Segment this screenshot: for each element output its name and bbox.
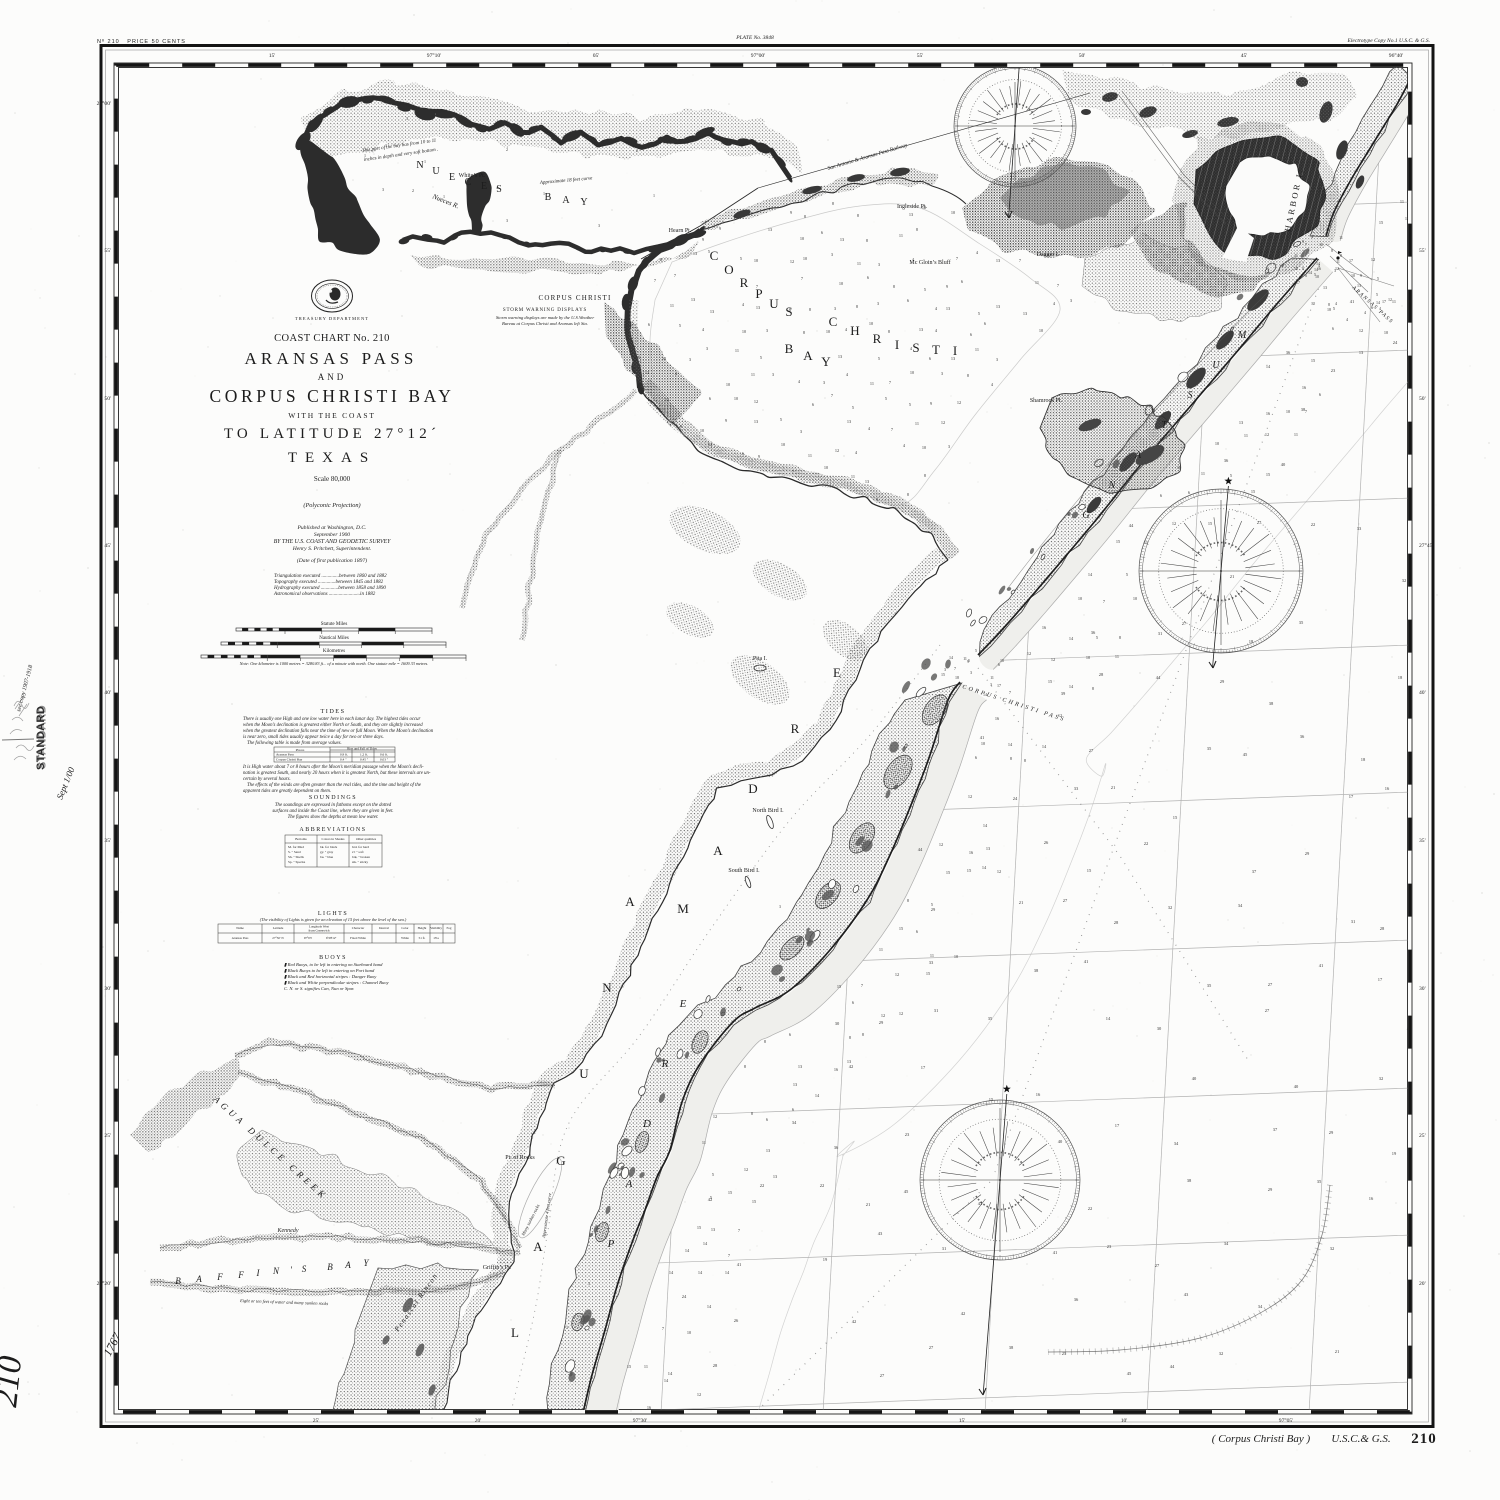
- svg-text:Rise and Fall of Tides: Rise and Fall of Tides: [347, 747, 377, 751]
- svg-text:3: 3: [996, 357, 998, 362]
- svg-text:38: 38: [1269, 701, 1274, 706]
- svg-text:9: 9: [725, 418, 727, 423]
- svg-text:28: 28: [1380, 926, 1385, 931]
- svg-text:Electrotype Copy No.1 U.S.C.: Electrotype Copy No.1 U.S.C. & G.S.: [1347, 38, 1430, 44]
- svg-text:33: 33: [929, 960, 934, 965]
- svg-text:13: 13: [1323, 285, 1327, 290]
- svg-text:29: 29: [931, 907, 936, 912]
- svg-text:15: 15: [1087, 868, 1092, 873]
- svg-text:5: 5: [852, 405, 854, 410]
- svg-text:3: 3: [766, 328, 768, 333]
- svg-text:8: 8: [764, 1039, 766, 1044]
- svg-text:3: 3: [689, 357, 691, 362]
- svg-text:15: 15: [728, 1190, 732, 1195]
- svg-text:8: 8: [907, 492, 909, 497]
- svg-text:WITH THE COAST: WITH THE COAST: [288, 411, 376, 420]
- svg-text:50': 50': [104, 396, 111, 402]
- svg-text:8: 8: [1119, 635, 1121, 640]
- svg-text:B: B: [175, 1276, 181, 1286]
- svg-text:10: 10: [1319, 242, 1323, 247]
- svg-text:B: B: [545, 192, 552, 203]
- svg-text:10: 10: [800, 236, 804, 241]
- svg-text:55': 55': [917, 53, 924, 59]
- svg-text:15: 15: [941, 672, 945, 677]
- svg-text:R: R: [873, 331, 882, 346]
- svg-text:8: 8: [866, 238, 868, 243]
- svg-text:2: 2: [412, 188, 414, 193]
- svg-text:TO LATITUDE 27°12´: TO LATITUDE 27°12´: [224, 426, 440, 442]
- svg-text:10: 10: [954, 954, 958, 959]
- svg-text:12: 12: [697, 1392, 701, 1397]
- svg-text:17: 17: [1382, 299, 1386, 304]
- svg-text:55': 55': [1419, 248, 1426, 254]
- svg-text:13: 13: [754, 419, 758, 424]
- svg-text:8: 8: [803, 330, 805, 335]
- svg-text:8: 8: [849, 1035, 851, 1040]
- svg-text:15: 15: [837, 984, 841, 989]
- svg-text:36: 36: [1074, 1297, 1079, 1302]
- svg-text:15: 15: [1116, 539, 1120, 544]
- svg-text:15: 15: [1311, 358, 1315, 363]
- svg-text:Corpus Christi Bay: Corpus Christi Bay: [276, 758, 302, 762]
- svg-text:F: F: [237, 1270, 244, 1280]
- svg-text:43: 43: [1184, 1292, 1189, 1297]
- svg-text:97°00': 97°00': [751, 52, 765, 59]
- svg-text:E: E: [679, 998, 687, 1010]
- svg-text:44: 44: [1170, 1364, 1175, 1369]
- svg-text:16: 16: [1036, 1092, 1041, 1097]
- svg-text:40: 40: [1058, 1139, 1063, 1144]
- svg-text:50': 50': [1079, 53, 1086, 59]
- svg-text:S. ″ Sand: S. ″ Sand: [288, 850, 301, 854]
- svg-text:14: 14: [1308, 270, 1312, 275]
- svg-text:E: E: [449, 172, 455, 183]
- svg-text:Kilometres: Kilometres: [323, 649, 345, 654]
- svg-text:15: 15: [1208, 521, 1212, 526]
- svg-text:8: 8: [809, 307, 811, 312]
- svg-text:12: 12: [941, 420, 945, 425]
- svg-text:27: 27: [880, 1373, 885, 1378]
- svg-text:17: 17: [921, 1065, 926, 1070]
- svg-text:22: 22: [1144, 841, 1149, 846]
- svg-text:CORPUS CHRISTI BAY: CORPUS CHRISTI BAY: [209, 386, 454, 406]
- svg-text:13: 13: [909, 212, 913, 217]
- svg-text:12: 12: [1388, 297, 1392, 302]
- svg-text:10: 10: [700, 428, 704, 433]
- svg-text:27: 27: [1155, 1263, 1160, 1268]
- svg-text:5: 5: [885, 396, 887, 401]
- svg-text:9: 9: [1302, 239, 1304, 244]
- svg-text:5: 5: [909, 402, 911, 407]
- svg-text:Published at Washington, D.C.: Published at Washington, D.C.: [296, 525, 366, 531]
- svg-text:11: 11: [670, 303, 674, 308]
- svg-text:Y: Y: [580, 197, 587, 208]
- svg-text:3: 3: [598, 223, 600, 228]
- svg-text:Nº 210 PRICE 50 CENTS: Nº 210 PRICE 50 CENTS: [97, 38, 186, 45]
- svg-text:41: 41: [1350, 299, 1355, 304]
- svg-text:18: 18: [955, 675, 959, 680]
- svg-text:U: U: [579, 1066, 589, 1081]
- svg-text:11: 11: [1115, 654, 1119, 659]
- svg-text:11: 11: [857, 261, 861, 266]
- svg-text:Places: Places: [296, 748, 305, 752]
- svg-text:97°10': 97°10': [427, 52, 441, 59]
- svg-text:G: G: [556, 1153, 565, 1168]
- svg-text:TREASURY DEPARTMENT: TREASURY DEPARTMENT: [295, 316, 369, 321]
- svg-text:G: G: [1082, 510, 1089, 521]
- svg-text:S: S: [1188, 390, 1193, 401]
- svg-text:17: 17: [1296, 280, 1300, 285]
- svg-text:11: 11: [990, 675, 994, 680]
- svg-text:R: R: [791, 721, 800, 736]
- svg-text:5: 5: [780, 417, 782, 422]
- svg-text:9: 9: [876, 497, 878, 502]
- svg-text:2: 2: [506, 147, 508, 152]
- svg-text:15: 15: [946, 870, 950, 875]
- svg-text:10: 10: [803, 256, 807, 261]
- svg-text:41: 41: [737, 1262, 742, 1267]
- svg-text:A: A: [533, 1239, 543, 1254]
- svg-text:Other qualities: Other qualities: [356, 837, 377, 841]
- svg-text:Hearn Pt.: Hearn Pt.: [669, 228, 692, 234]
- svg-text:27: 27: [1268, 982, 1273, 987]
- svg-text:12: 12: [1051, 657, 1055, 662]
- svg-text:18: 18: [1361, 757, 1366, 762]
- svg-text:8: 8: [857, 213, 859, 218]
- svg-text:40: 40: [1281, 462, 1286, 467]
- svg-text:15: 15: [697, 1225, 701, 1230]
- svg-text:5: 5: [712, 1172, 714, 1177]
- svg-text:The figures show the depths at: The figures show the depths at mean low …: [288, 815, 379, 820]
- svg-text:30: 30: [1157, 1026, 1162, 1031]
- svg-text:13: 13: [798, 1064, 802, 1069]
- svg-text:10: 10: [981, 741, 985, 746]
- svg-text:8: 8: [1331, 248, 1333, 253]
- svg-text:44: 44: [1156, 675, 1161, 680]
- svg-text:10: 10: [754, 258, 758, 263]
- svg-text:36: 36: [1286, 350, 1291, 355]
- svg-text:27: 27: [1089, 748, 1094, 753]
- svg-text:55': 55': [104, 248, 111, 254]
- svg-text:35: 35: [1207, 746, 1212, 751]
- svg-text:D: D: [748, 781, 757, 796]
- svg-text:30: 30: [835, 1021, 840, 1026]
- svg-text:97°05': 97°05': [1279, 1417, 1293, 1424]
- svg-text:30': 30': [1419, 986, 1426, 992]
- svg-text:39: 39: [1061, 691, 1066, 696]
- svg-text:12: 12: [708, 442, 712, 447]
- svg-text:13: 13: [665, 397, 669, 402]
- svg-text:10: 10: [687, 1330, 691, 1335]
- svg-text:13¼: 13¼: [433, 936, 439, 940]
- svg-text:5: 5: [740, 256, 742, 261]
- svg-text:43: 43: [878, 1231, 883, 1236]
- svg-text:11: 11: [1035, 280, 1039, 285]
- svg-text:32: 32: [1330, 1246, 1335, 1251]
- svg-text:5: 5: [1230, 473, 1232, 478]
- svg-text:A: A: [625, 1178, 633, 1190]
- svg-text:15: 15: [1048, 679, 1052, 684]
- svg-text:36: 36: [1091, 630, 1096, 635]
- svg-text:42: 42: [852, 1319, 857, 1324]
- svg-text:38: 38: [1009, 1345, 1014, 1350]
- svg-text:7: 7: [954, 666, 956, 671]
- svg-text:15: 15: [1251, 489, 1255, 494]
- svg-text:O: O: [724, 262, 733, 277]
- svg-text:10: 10: [839, 281, 843, 286]
- svg-text:29: 29: [1268, 1187, 1273, 1192]
- svg-text:Name: Name: [236, 926, 244, 930]
- svg-text:Sh. ″ Shells: Sh. ″ Shells: [288, 855, 305, 859]
- svg-text:(The visibility of Lights is g: (The visibility of Lights is given for a…: [260, 917, 407, 922]
- svg-text:21: 21: [866, 1202, 871, 1207]
- svg-text:96°40': 96°40': [1389, 52, 1403, 59]
- svg-text:35': 35': [1419, 838, 1426, 844]
- svg-text:41: 41: [1319, 963, 1324, 968]
- svg-text:4: 4: [1346, 317, 1348, 322]
- svg-text:CORPUS CHRISTI: CORPUS CHRISTI: [538, 294, 611, 302]
- svg-text:17: 17: [997, 683, 1001, 688]
- svg-text:15: 15: [1310, 226, 1314, 231]
- svg-text:27°45': 27°45': [1419, 542, 1433, 549]
- svg-text:3: 3: [1070, 298, 1072, 303]
- svg-text:18: 18: [1398, 675, 1403, 680]
- svg-text:Bureau at Corpus Christi and A: Bureau at Corpus Christi and Aransas lef…: [502, 321, 588, 326]
- svg-text:BY THE U.S. COAST AND GEODETIC: BY THE U.S. COAST AND GEODETIC SURVEY: [274, 539, 392, 545]
- svg-text:COAST CHART No. 210: COAST CHART No. 210: [274, 333, 390, 344]
- svg-text:13: 13: [1239, 420, 1243, 425]
- svg-text:Scale 80,000: Scale 80,000: [314, 475, 351, 483]
- svg-text:15: 15: [1379, 220, 1383, 225]
- svg-text:13: 13: [996, 258, 1000, 263]
- svg-text:3: 3: [831, 252, 833, 257]
- svg-text:14: 14: [1106, 1016, 1111, 1021]
- svg-text:2: 2: [636, 148, 638, 153]
- svg-text:29: 29: [1329, 1130, 1334, 1135]
- svg-text:T: T: [932, 342, 940, 357]
- svg-text:ARANSAS PASS: ARANSAS PASS: [244, 349, 417, 368]
- svg-text:31: 31: [934, 1008, 939, 1013]
- svg-text:36: 36: [1224, 458, 1229, 463]
- svg-text:11: 11: [1339, 235, 1343, 240]
- svg-text:11: 11: [851, 474, 855, 479]
- svg-text:5: 5: [1192, 547, 1194, 552]
- svg-text:23: 23: [1331, 368, 1336, 373]
- svg-text:15: 15: [899, 926, 903, 931]
- svg-text:A: A: [713, 843, 723, 858]
- svg-text:11: 11: [975, 347, 979, 352]
- svg-text:6: 6: [1332, 326, 1334, 331]
- svg-text:05': 05': [593, 53, 600, 59]
- svg-text:Statute Miles: Statute Miles: [321, 622, 348, 627]
- svg-text:12: 12: [1027, 651, 1031, 656]
- svg-text:21: 21: [1335, 1349, 1340, 1354]
- svg-text:9: 9: [719, 226, 721, 231]
- svg-text:44: 44: [918, 847, 923, 852]
- svg-text:8: 8: [1340, 253, 1342, 258]
- svg-text:8: 8: [862, 1032, 864, 1037]
- svg-text:9: 9: [702, 237, 704, 242]
- svg-text:12: 12: [957, 400, 961, 405]
- svg-text:35: 35: [1207, 983, 1212, 988]
- svg-text:3: 3: [834, 306, 836, 311]
- svg-text:25': 25': [104, 1133, 111, 1139]
- svg-text:N: N: [272, 1266, 280, 1276]
- svg-text:AND: AND: [318, 372, 347, 382]
- svg-text:24: 24: [1393, 340, 1398, 345]
- svg-text:15: 15: [989, 1097, 994, 1102]
- svg-text:L: L: [511, 1325, 519, 1340]
- svg-text:11: 11: [1400, 199, 1404, 204]
- svg-text:3: 3: [990, 682, 992, 687]
- svg-text:H: H: [850, 323, 859, 338]
- svg-text:0.6 ft.: 0.6 ft.: [380, 753, 388, 757]
- svg-text:37: 37: [1273, 1127, 1278, 1132]
- svg-text:18: 18: [1294, 266, 1298, 271]
- svg-text:12: 12: [1172, 521, 1176, 526]
- svg-text:30': 30': [104, 986, 111, 992]
- svg-text:5: 5: [760, 355, 762, 360]
- svg-text:9: 9: [946, 284, 948, 289]
- svg-text:▮ Black and Red horizontal str: ▮ Black and Red horizontal stripes : Dan…: [284, 974, 377, 979]
- svg-text:D: D: [642, 1118, 651, 1130]
- svg-text:14: 14: [668, 1371, 673, 1376]
- svg-text:13: 13: [1023, 311, 1027, 316]
- svg-text:Nautical Miles: Nautical Miles: [319, 636, 349, 641]
- svg-text:5: 5: [878, 356, 880, 361]
- svg-text:23: 23: [905, 1132, 910, 1137]
- svg-text:gy. ″ gray: gy. ″ gray: [320, 850, 333, 854]
- svg-text:R: R: [661, 1058, 669, 1070]
- svg-text:3: 3: [706, 346, 708, 351]
- svg-text:B: B: [327, 1262, 333, 1272]
- svg-text:25': 25': [313, 1418, 320, 1424]
- svg-text:( Corpus Christi Bay ): ( Corpus Christi Bay ): [1212, 1433, 1311, 1445]
- svg-text:11: 11: [702, 1140, 706, 1145]
- svg-text:27: 27: [929, 1345, 934, 1350]
- svg-text:The soundings are expressed in: The soundings are expressed in fathoms e…: [275, 803, 392, 808]
- svg-text:9: 9: [680, 424, 682, 429]
- svg-text:17: 17: [1349, 794, 1354, 799]
- svg-text:45: 45: [1243, 752, 1248, 757]
- svg-text:45: 45: [904, 1189, 909, 1194]
- svg-text:45: 45: [1127, 1371, 1132, 1376]
- svg-text:Storm warning displays are mad: Storm warning displays are made by the U…: [496, 315, 595, 320]
- svg-text:3: 3: [1334, 268, 1336, 273]
- svg-text:F: F: [216, 1272, 223, 1282]
- svg-text:11: 11: [735, 348, 739, 353]
- svg-text:33: 33: [1074, 786, 1079, 791]
- svg-text:Aransas Pass: Aransas Pass: [276, 753, 294, 757]
- svg-text:11: 11: [879, 947, 883, 952]
- svg-text:11: 11: [644, 1364, 648, 1369]
- svg-text:3: 3: [382, 187, 384, 192]
- svg-text:5: 5: [924, 287, 926, 292]
- svg-text:N: N: [1108, 480, 1117, 491]
- svg-text:8: 8: [744, 1064, 746, 1069]
- svg-text:S: S: [912, 340, 919, 355]
- svg-text:36: 36: [1300, 734, 1305, 739]
- svg-text:51 ft.: 51 ft.: [419, 936, 426, 940]
- svg-text:20': 20': [475, 1418, 482, 1424]
- svg-text:10: 10: [910, 370, 914, 375]
- svg-text:37: 37: [1252, 869, 1257, 874]
- svg-text:15: 15: [1173, 815, 1178, 820]
- svg-text:12: 12: [835, 448, 839, 453]
- svg-text:43: 43: [978, 1201, 983, 1206]
- svg-text:13: 13: [865, 479, 869, 484]
- svg-text:8: 8: [888, 329, 890, 334]
- svg-text:31: 31: [942, 1246, 947, 1251]
- svg-text:10: 10: [742, 329, 746, 334]
- svg-text:September 1900: September 1900: [314, 532, 350, 538]
- svg-text:45': 45': [104, 543, 111, 549]
- svg-text:There is usually one High and: There is usually one High and one low wa…: [243, 717, 421, 722]
- svg-text:Color: Color: [401, 926, 409, 930]
- svg-text:13: 13: [996, 304, 1000, 309]
- svg-text:35: 35: [1299, 620, 1304, 625]
- svg-text:13: 13: [919, 327, 923, 332]
- svg-text:5: 5: [1377, 276, 1379, 281]
- svg-text:32: 32: [1219, 1351, 1224, 1356]
- svg-text:8: 8: [751, 1111, 753, 1116]
- svg-text:13: 13: [946, 306, 950, 311]
- svg-text:11: 11: [963, 656, 967, 661]
- svg-text:38: 38: [1301, 407, 1306, 412]
- svg-text:24: 24: [682, 1294, 687, 1299]
- svg-text:12: 12: [1359, 328, 1363, 333]
- svg-text:apparent tides are greatly dep: apparent tides are greatly dependent on …: [243, 789, 331, 794]
- svg-text:A: A: [562, 195, 570, 206]
- svg-text:U.S.C.& G.S.: U.S.C.& G.S.: [1331, 1433, 1390, 1445]
- svg-text:12: 12: [790, 259, 794, 264]
- svg-text:1: 1: [653, 193, 655, 198]
- svg-text:27°20': 27°20': [97, 1280, 111, 1287]
- svg-text:32: 32: [1402, 578, 1407, 583]
- svg-text:S: S: [496, 184, 502, 195]
- svg-text:Pita I.: Pita I.: [753, 656, 768, 662]
- svg-text:10: 10: [1351, 273, 1355, 278]
- svg-text:7: 7: [1305, 242, 1307, 247]
- svg-text:40: 40: [1192, 1076, 1197, 1081]
- svg-text:B: B: [785, 341, 794, 356]
- svg-text:bu. ″ blue: bu. ″ blue: [320, 855, 334, 859]
- svg-text:5: 5: [1333, 306, 1335, 311]
- svg-text:6ʰ28ᵗ12ˢ: 6ʰ28ᵗ12ˢ: [326, 936, 337, 940]
- svg-text:Colors in Shades: Colors in Shades: [322, 837, 346, 841]
- svg-text:0.45 ″: 0.45 ″: [360, 758, 369, 762]
- svg-text:27: 27: [1257, 520, 1262, 525]
- svg-text:10: 10: [824, 465, 828, 470]
- svg-text:8: 8: [907, 898, 909, 903]
- svg-text:A: A: [1134, 450, 1142, 461]
- svg-text:14: 14: [949, 655, 953, 660]
- svg-text:13: 13: [710, 309, 714, 314]
- svg-text:5: 5: [975, 648, 977, 653]
- svg-text:Dagger I.: Dagger I.: [1037, 252, 1060, 258]
- svg-text:10: 10: [781, 442, 785, 447]
- svg-text:3: 3: [506, 218, 508, 223]
- svg-text:12: 12: [895, 972, 899, 977]
- svg-text:16: 16: [1385, 786, 1390, 791]
- svg-text:BUOYS: BUOYS: [319, 955, 347, 961]
- svg-text:29: 29: [1220, 679, 1225, 684]
- svg-text:5: 5: [679, 323, 681, 328]
- svg-text:13: 13: [1359, 350, 1363, 355]
- svg-text:35: 35: [988, 1016, 993, 1021]
- svg-text:16: 16: [1369, 1196, 1374, 1201]
- svg-text:11: 11: [1294, 432, 1298, 437]
